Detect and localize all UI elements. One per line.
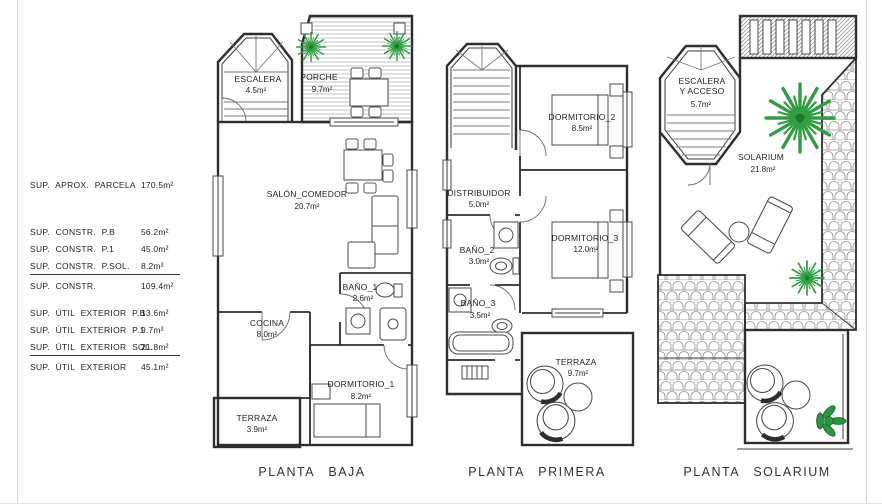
staircase-solarium <box>660 46 740 185</box>
salon-dining-set <box>344 139 393 193</box>
round-chair-icon <box>527 366 563 402</box>
staircase-primera <box>447 44 516 150</box>
dining-table <box>344 150 382 180</box>
porch-post <box>394 23 405 34</box>
room-area-bano3: 3.5m² <box>470 311 491 320</box>
room-label-porche: PORCHE <box>300 72 338 82</box>
plan-baja: ESCALERA 4.5m² PORCHE 9.7m² SALÓN_COMEDO… <box>213 16 417 479</box>
room-label-solarium: SOLARIUM <box>738 152 784 162</box>
room-label-distribuidor: DISTRIBUIDOR <box>447 188 510 198</box>
sink-icon <box>346 308 370 334</box>
toilet-icon <box>376 283 394 297</box>
room-area-distribuidor: 5.0m² <box>469 200 490 209</box>
plan-primera: DORMITORIO_2 8.5m² DISTRIBUIDOR 5.0m² BA… <box>443 44 633 479</box>
sun-lounger-icon <box>747 196 794 254</box>
sun-lounger-icon <box>680 210 735 265</box>
room-label-terraza-primera: TERRAZA <box>555 357 596 367</box>
toilet-icon <box>492 319 512 333</box>
round-table-icon <box>782 381 810 409</box>
room-label-escalera: ESCALERA <box>235 74 282 84</box>
exterior-walls-primera <box>447 150 522 394</box>
room-label-dormitorio2: DORMITORIO_2 <box>549 112 616 122</box>
sink-icon <box>494 222 518 248</box>
room-area-bano1: 2.6m² <box>353 294 374 303</box>
room-area-dormitorio1: 8.2m² <box>351 392 372 401</box>
plan-solarium: ESCALERA Y ACCESO 5.7m² SOLARIUM 21.8m² … <box>658 16 856 479</box>
room-area-terraza-primera: 9.7m² <box>568 369 589 378</box>
room-area-dormitorio3: 12.0m² <box>574 245 599 254</box>
terrace-furniture-primera <box>527 366 592 448</box>
room-label-salon: SALÓN_COMEDOR <box>267 189 348 199</box>
nightstand <box>610 280 623 292</box>
room-label-terraza-baja: TERRAZA <box>236 413 277 423</box>
sliding-door <box>330 118 398 126</box>
room-label-bano1: BAÑO_1 <box>343 282 378 292</box>
round-table-icon <box>564 383 592 411</box>
pergola-posts <box>750 20 836 54</box>
round-chair-icon <box>747 365 783 401</box>
plan-caption-primera: PLANTA PRIMERA <box>468 465 605 479</box>
sliding-door <box>552 309 603 317</box>
room-area-salon: 20.7m² <box>295 202 320 211</box>
room-area-bano2: 3.0m² <box>469 257 490 266</box>
round-table-icon <box>729 222 749 242</box>
room-label-dormitorio3: DORMITORIO_3 <box>552 233 619 243</box>
palm-tree-icon <box>790 261 824 295</box>
room-area-escalera: 4.5m² <box>246 86 267 95</box>
room-label-dormitorio1: DORMITORIO_1 <box>328 379 395 389</box>
room-label-cocina: COCINA <box>250 318 284 328</box>
roof-tiles-block <box>658 275 745 403</box>
plan-caption-baja: PLANTA BAJA <box>258 465 365 479</box>
floor-plan-drawing: ESCALERA 4.5m² PORCHE 9.7m² SALÓN_COMEDO… <box>0 0 882 504</box>
shower-icon <box>380 308 406 340</box>
nightstand <box>610 146 623 158</box>
nightstand <box>610 84 623 96</box>
nightstand <box>610 210 623 222</box>
room-area-solarium: 21.8m² <box>751 165 776 174</box>
room-label-bano2: BAÑO_2 <box>460 245 495 255</box>
plan-caption-solarium: PLANTA SOLARIUM <box>683 465 830 479</box>
room-area-cocina: 8.0m² <box>257 330 278 339</box>
floor-plan-sheet: SUP. APROX. PARCELA 170.5m² SUP. CONSTR.… <box>0 0 882 504</box>
room-area-escalera-acceso: 5.7m² <box>691 100 712 109</box>
sofa <box>348 196 398 268</box>
room-area-terraza-baja: 3.9m² <box>247 425 268 434</box>
appliance-icon <box>462 366 488 379</box>
bush-icon <box>817 404 846 438</box>
room-label-escalera-acceso-line1: ESCALERA <box>679 76 726 86</box>
room-area-dormitorio2: 8.5m² <box>572 124 593 133</box>
toilet-icon <box>490 258 512 274</box>
room-label-bano3: BAÑO_3 <box>461 298 496 308</box>
room-label-escalera-acceso-line2: Y ACCESO <box>680 86 725 96</box>
dining-table <box>350 79 388 106</box>
room-area-porche: 9.7m² <box>312 85 333 94</box>
